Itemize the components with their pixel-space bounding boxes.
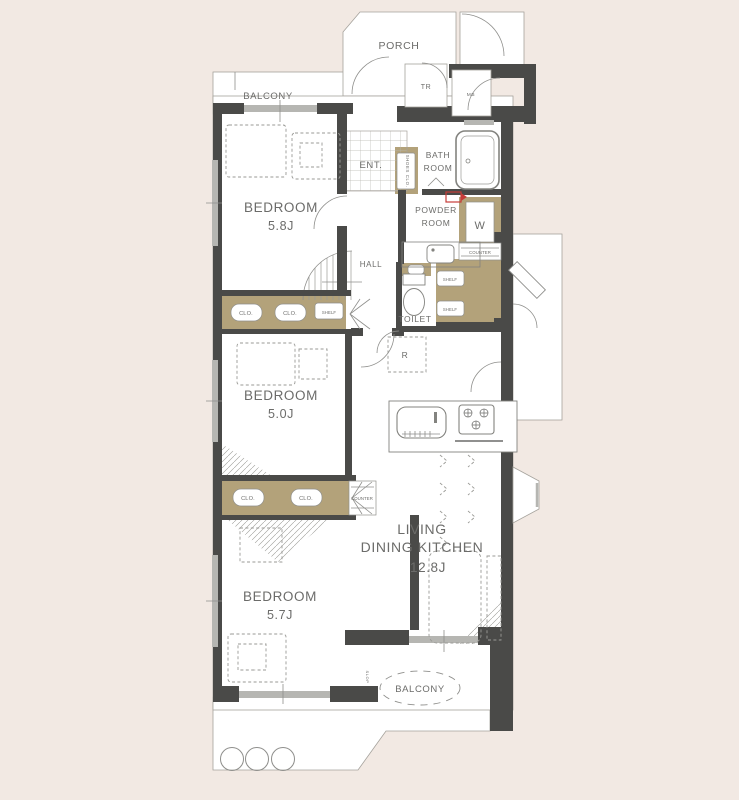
window-balcony xyxy=(409,636,478,643)
ldk-size: 12.8J xyxy=(410,560,446,575)
shoes-clo-label: SHOES CLO. xyxy=(405,155,410,188)
wall xyxy=(219,290,351,296)
bath-window xyxy=(464,120,494,125)
toilet-tank xyxy=(403,274,425,285)
bay-window xyxy=(513,467,539,523)
counter-b-label: COUNTER xyxy=(351,496,373,501)
toilet-bowl xyxy=(404,289,425,316)
shelf-label-2: SHELF xyxy=(443,307,458,312)
vanity-basin xyxy=(427,245,454,263)
tr-label: TR xyxy=(421,84,432,91)
wall xyxy=(219,515,356,520)
bedroom3-size: 5.7J xyxy=(267,608,293,622)
wall xyxy=(396,326,438,332)
stove xyxy=(459,405,494,434)
wall xyxy=(501,245,513,327)
clo-b1-label: CLO. xyxy=(241,496,255,502)
bedroom2-size: 5.0J xyxy=(268,407,294,421)
ldk-label-1: LIVING xyxy=(397,521,447,537)
washer-label: W xyxy=(475,220,486,232)
counter-powder-label: COUNTER xyxy=(469,250,491,255)
wall xyxy=(398,190,406,242)
wall xyxy=(478,627,513,645)
wall xyxy=(398,240,404,264)
porch-label: PORCH xyxy=(379,40,420,52)
entry-alcove-area xyxy=(460,12,524,66)
window-bottom xyxy=(239,691,330,698)
wall xyxy=(501,122,513,198)
toilet-label: TOILET xyxy=(398,314,431,324)
bedroom1-size: 5.8J xyxy=(268,219,294,233)
window-top xyxy=(244,105,317,112)
bath-label-2: ROOM xyxy=(424,163,453,173)
ldk-label-2: DINING KITCHEN xyxy=(361,539,484,555)
wall-kitchen-top xyxy=(436,322,502,332)
toilet-basin-bowl xyxy=(408,265,424,274)
balcony-bottom-label: BALCONY xyxy=(395,684,445,695)
wall-right xyxy=(501,330,513,644)
mb-label: MB xyxy=(467,92,475,98)
ent-label: ENT. xyxy=(360,160,383,171)
wall-partition-1 xyxy=(345,330,352,481)
powder-label-2: ROOM xyxy=(422,218,451,228)
wall xyxy=(345,630,409,645)
shelf-label-1: SHELF xyxy=(443,277,458,282)
wall xyxy=(213,686,239,702)
kitchen-faucet xyxy=(434,412,437,423)
wall xyxy=(219,329,351,334)
wall xyxy=(317,103,353,114)
slop-label: SLOP xyxy=(365,670,370,683)
floor-plan-canvas: PORCH BALCONY TR MB ENT. SHOES CLO. BATH… xyxy=(0,0,739,800)
shelf-a-label: SHELF xyxy=(322,310,337,315)
bedroom2-label: BEDROOM xyxy=(244,388,318,403)
balcony-top-label: BALCONY xyxy=(243,91,293,102)
vanity-faucet xyxy=(431,248,434,251)
fridge-label: R xyxy=(402,350,409,360)
bath-label-1: BATH xyxy=(426,150,450,160)
floor-plan-page: PORCH BALCONY TR MB ENT. SHOES CLO. BATH… xyxy=(0,0,739,800)
wall xyxy=(337,106,347,194)
bedroom3-label: BEDROOM xyxy=(243,589,317,604)
clo-a2-label: CLO. xyxy=(283,311,297,317)
wall xyxy=(337,226,347,296)
powder-label-1: POWDER xyxy=(415,205,457,215)
wall xyxy=(490,642,513,731)
wall xyxy=(219,475,356,481)
bathtub xyxy=(456,131,499,189)
bedroom1-label: BEDROOM xyxy=(244,200,318,215)
wall xyxy=(330,686,378,702)
hall-label: HALL xyxy=(360,260,382,269)
clo-b2-label: CLO. xyxy=(299,496,313,502)
clo-a1-label: CLO. xyxy=(239,311,253,317)
kitchen-sink xyxy=(397,407,446,438)
wall xyxy=(351,328,363,336)
